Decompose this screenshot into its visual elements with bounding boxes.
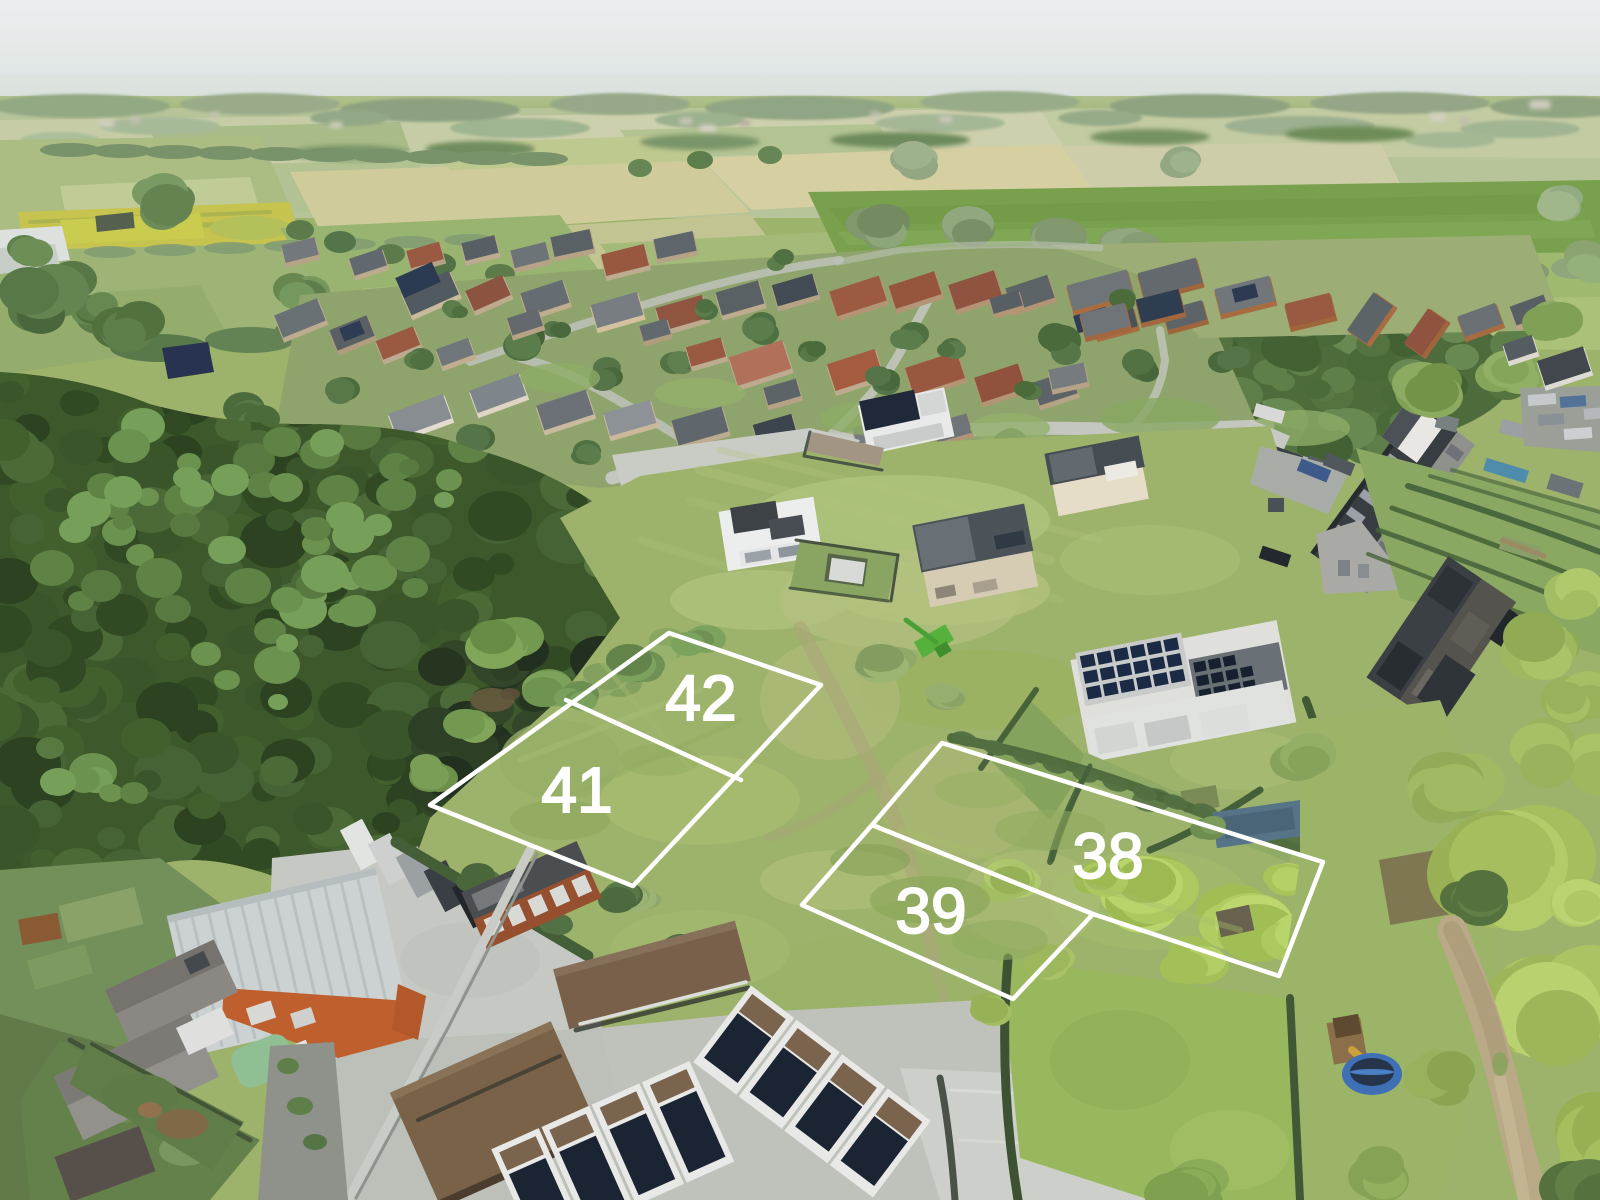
svg-text:41: 41 <box>541 754 612 826</box>
svg-text:39: 39 <box>895 875 966 947</box>
svg-text:38: 38 <box>1072 820 1143 892</box>
svg-text:42: 42 <box>665 662 736 734</box>
